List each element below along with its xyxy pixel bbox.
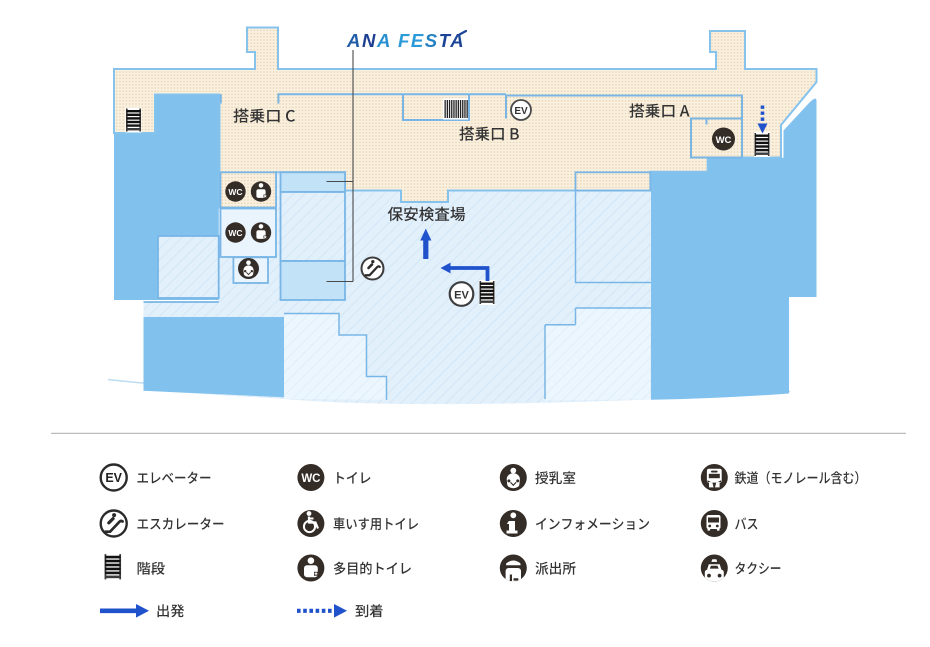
svg-text:EV: EV: [105, 471, 122, 485]
svg-text:WC: WC: [228, 187, 242, 197]
svg-text:EV: EV: [454, 290, 469, 302]
svg-text:EV: EV: [514, 106, 528, 117]
svg-text:WC: WC: [228, 228, 242, 238]
svg-text:WC: WC: [716, 135, 732, 146]
svg-text:WC: WC: [301, 473, 320, 485]
svg-text:ANA FESTA: ANA FESTA: [346, 30, 465, 51]
